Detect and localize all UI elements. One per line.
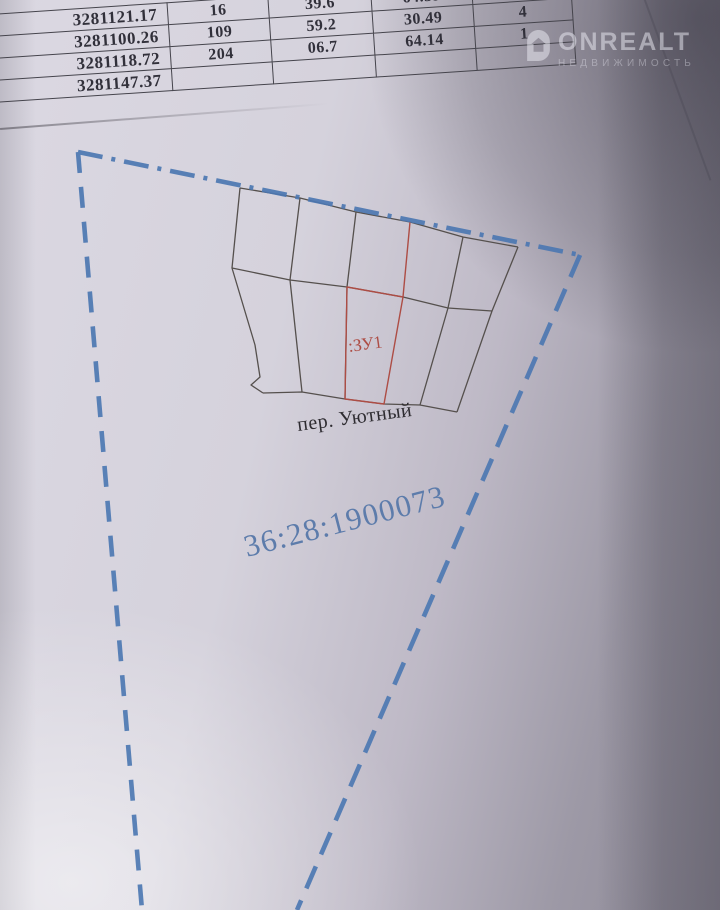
parcel-outlines: [232, 188, 518, 412]
parcel-divider: [420, 237, 463, 405]
parcel-divider: [290, 198, 302, 392]
parcel-zu1-label: :ЗУ1: [347, 331, 384, 356]
street-label: пер. Уютный: [296, 399, 414, 436]
watermark-brand: ONREALT: [558, 30, 695, 55]
plan-drawing: :ЗУ1 пер. Уютный 36:28:1900073: [0, 0, 720, 910]
parcel-zu1-red-outline: [345, 222, 410, 404]
boundary-right-edge: [297, 255, 580, 910]
parcels-left-edge: [232, 188, 263, 393]
cadastral-number: 36:28:1900073: [240, 478, 449, 564]
onrealt-watermark: ONREALT НЕДВИЖИМОСТЬ: [527, 30, 695, 69]
cadastral-plan-photo: 3281121.17 16 39.6 64.39 3281100.26 109 …: [0, 0, 720, 910]
watermark-text: ONREALT НЕДВИЖИМОСТЬ: [558, 30, 695, 69]
onrealt-pin-icon: [527, 30, 550, 61]
parcels-right-edge: [457, 247, 518, 412]
watermark-subtitle: НЕДВИЖИМОСТЬ: [558, 59, 695, 69]
boundary-left-edge: [78, 152, 142, 910]
boundary-top-edge: [78, 152, 580, 255]
parcels-top-edge: [240, 188, 518, 247]
